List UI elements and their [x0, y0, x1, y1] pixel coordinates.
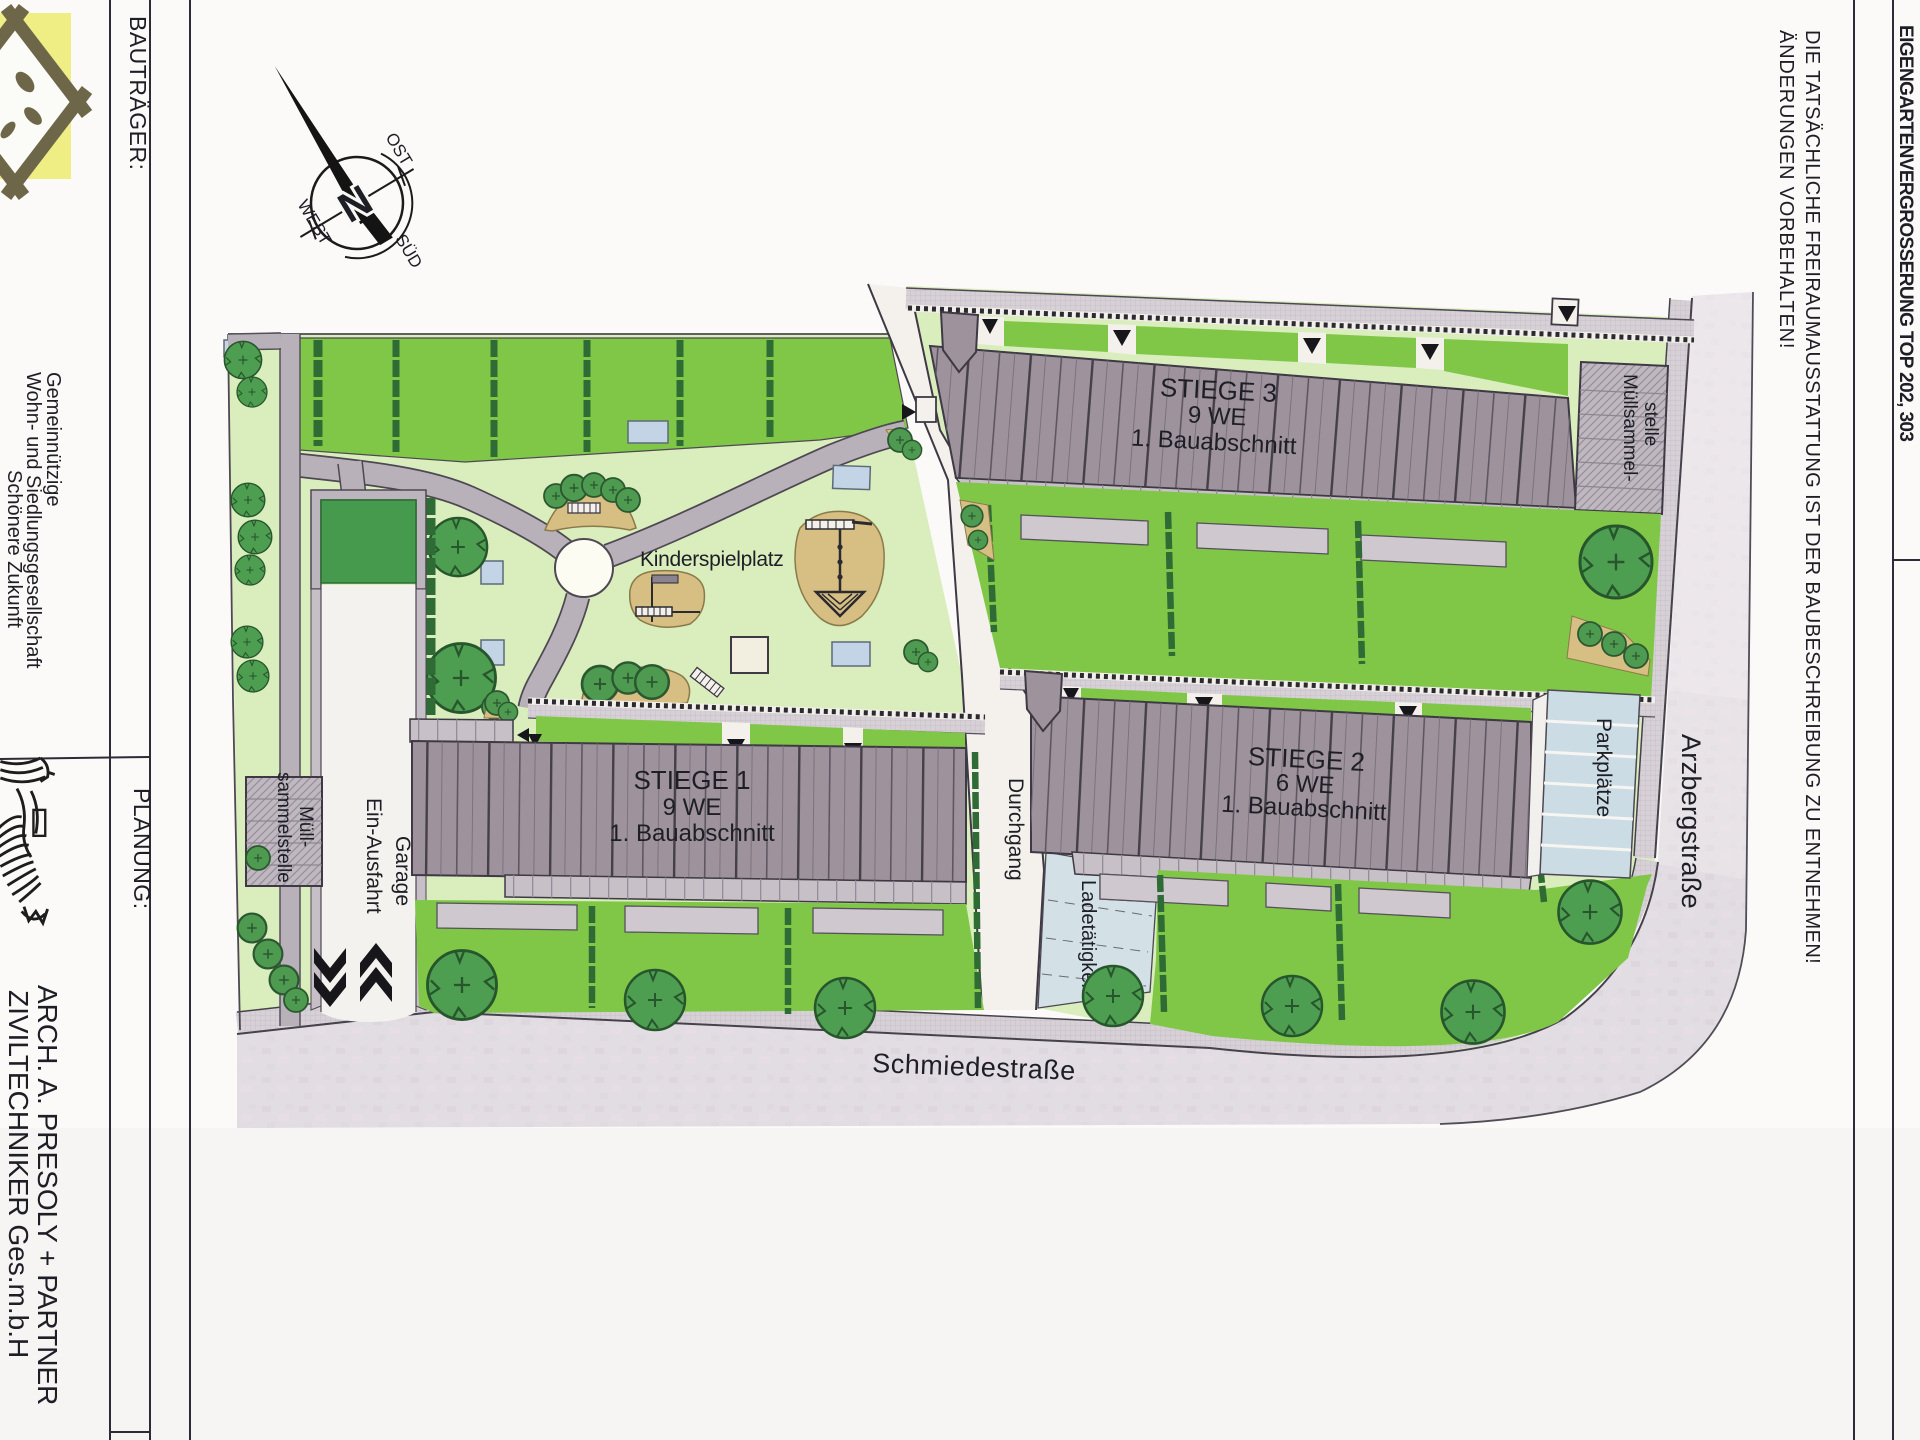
svg-text:ÄNDERUNGEN VORBEHALTEN!: ÄNDERUNGEN VORBEHALTEN! — [1775, 30, 1797, 349]
svg-text:PLANUNG:: PLANUNG: — [129, 788, 155, 910]
svg-text:BAUTRÄGER:: BAUTRÄGER: — [125, 16, 151, 171]
svg-text:9 WE: 9 WE — [663, 794, 722, 821]
svg-text:ZIVILTECHNIKER Ges.m.b.H: ZIVILTECHNIKER Ges.m.b.H — [3, 990, 34, 1358]
svg-text:Garage: Garage — [391, 836, 414, 906]
svg-text:ARCH. A. PRESOLY + PARTNER: ARCH. A. PRESOLY + PARTNER — [32, 985, 63, 1405]
svg-text:Schönere Zukunft: Schönere Zukunft — [3, 470, 25, 628]
svg-text:sammelstelle: sammelstelle — [273, 772, 294, 883]
svg-text:Gemeinnützige: Gemeinnützige — [42, 372, 64, 507]
svg-text:Durchgang: Durchgang — [1004, 778, 1027, 881]
svg-text:Müllsammel-: Müllsammel- — [1619, 374, 1640, 482]
svg-text:Parkplätze: Parkplätze — [1592, 718, 1615, 817]
svg-text:Ein-Ausfahrt: Ein-Ausfahrt — [362, 798, 385, 914]
svg-text:Kinderspielplatz: Kinderspielplatz — [640, 548, 783, 571]
svg-text:DIE TATSÄCHLICHE FREIRAUMAUSST: DIE TATSÄCHLICHE FREIRAUMAUSSTATTUNG IST… — [1801, 30, 1823, 964]
svg-text:stelle: stelle — [1640, 402, 1661, 446]
svg-text:STIEGE 1: STIEGE 1 — [633, 765, 750, 795]
svg-text:1. Bauabschnitt: 1. Bauabschnitt — [609, 820, 775, 847]
svg-text:Arzbergstraße: Arzbergstraße — [1676, 734, 1706, 909]
svg-text:Müll-: Müll- — [295, 806, 316, 847]
svg-text:EIGENGARTENVERGROSSERUNG TOP: EIGENGARTENVERGROSSERUNG TOP 202, 303 — [1895, 25, 1916, 441]
